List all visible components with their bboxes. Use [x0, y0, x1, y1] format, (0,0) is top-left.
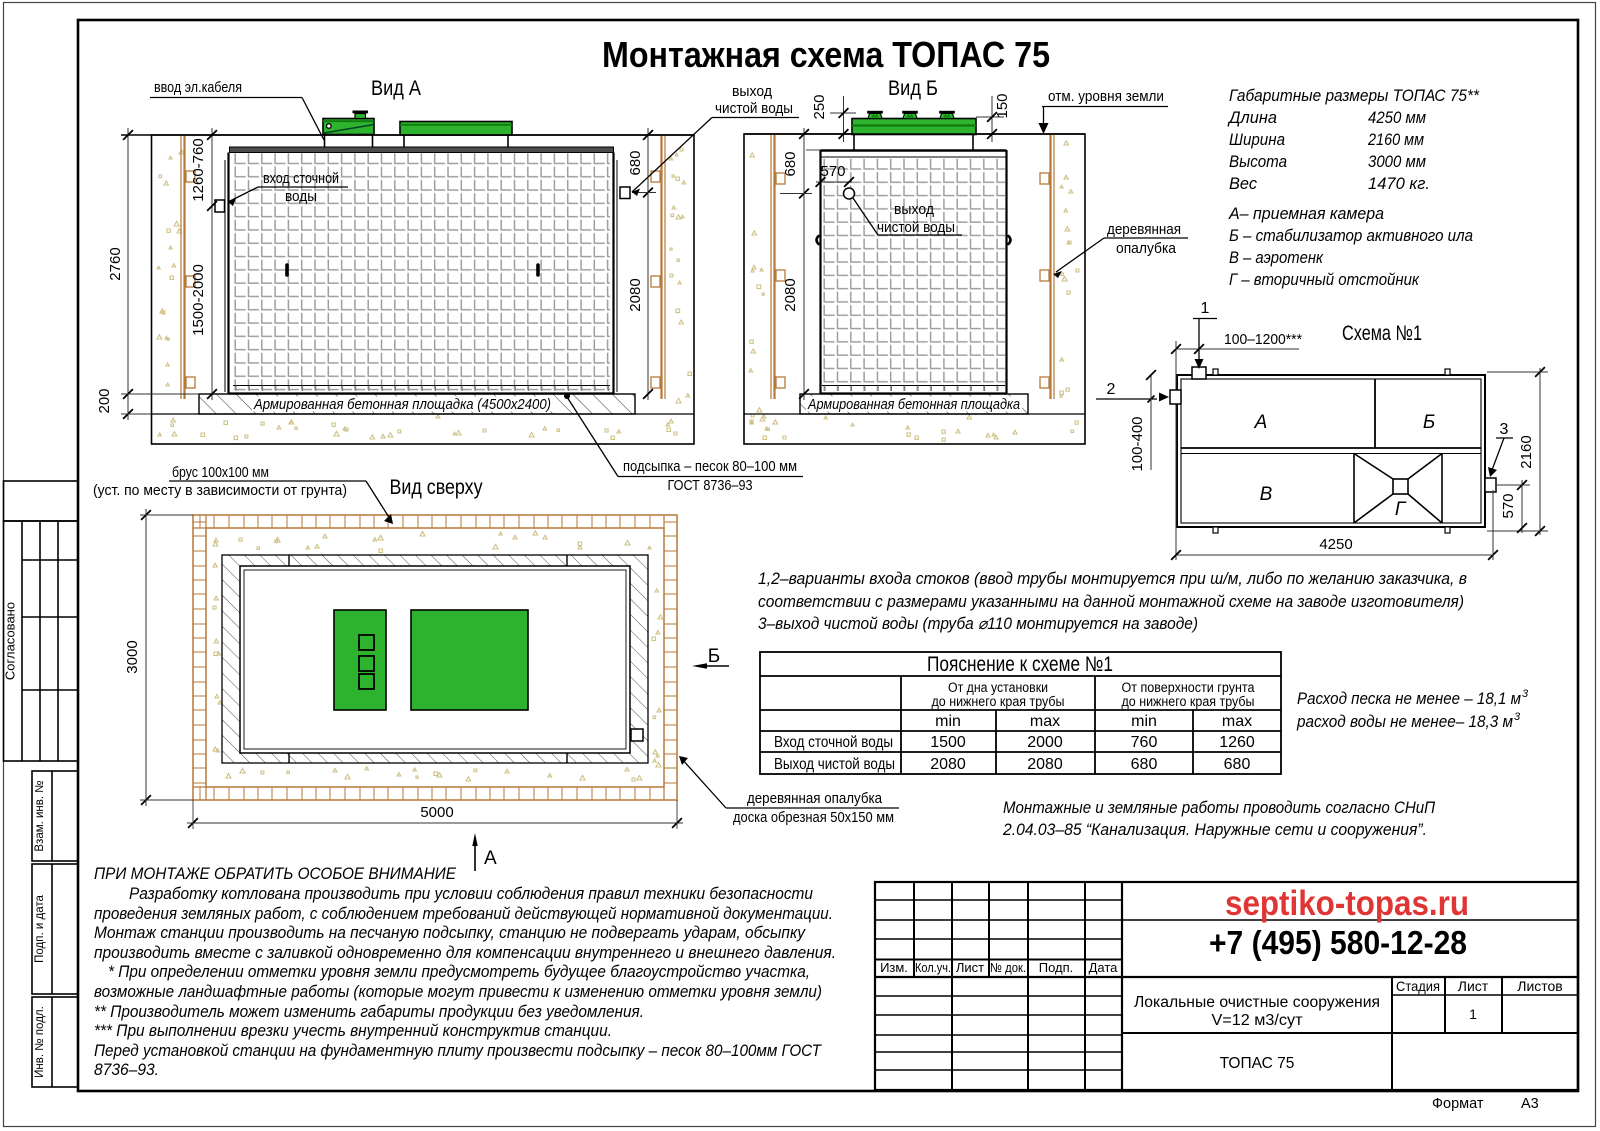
svg-text:Формат: Формат — [1432, 1096, 1484, 1112]
svg-text:Лист: Лист — [956, 960, 984, 975]
svg-text:Перед установкой станции на фу: Перед установкой станции на фундаментную… — [94, 1042, 823, 1060]
svg-text:8736–93.: 8736–93. — [94, 1061, 159, 1079]
svg-text:1260: 1260 — [1219, 734, 1255, 751]
svg-text:Взам. инв. №: Взам. инв. № — [34, 780, 46, 851]
svg-text:до нижнего края трубы: до нижнего края трубы — [932, 694, 1065, 709]
svg-text:Б – стабилизатор активного ила: Б – стабилизатор активного ила — [1229, 227, 1473, 245]
svg-text:опалубка: опалубка — [1116, 240, 1177, 257]
svg-text:А3: А3 — [1521, 1096, 1539, 1112]
svg-text:2760: 2760 — [107, 247, 124, 280]
svg-text:Инв. № подл.: Инв. № подл. — [34, 1006, 46, 1078]
svg-text:680: 680 — [627, 150, 644, 175]
svg-text:3–выход чистой воды (труба ⌀11: 3–выход чистой воды (труба ⌀110 монтируе… — [758, 615, 1198, 633]
svg-text:доска обрезная 50х150 мм: доска обрезная 50х150 мм — [733, 809, 894, 826]
svg-text:760: 760 — [1131, 734, 1158, 751]
svg-text:** Производитель может изменит: ** Производитель может изменить габариты… — [94, 1003, 644, 1021]
svg-text:680: 680 — [1224, 756, 1251, 773]
svg-text:*** При выполнении врезки учес: *** При выполнении врезки учесть внутрен… — [94, 1022, 612, 1040]
svg-text:Вид А: Вид А — [371, 77, 421, 100]
svg-text:№ док.: № док. — [990, 960, 1026, 975]
svg-text:Подп.: Подп. — [1039, 960, 1074, 975]
svg-text:(уст. по месту в зависимости о: (уст. по месту в зависимости от грунта) — [93, 482, 347, 499]
svg-text:расход воды не менее– 18,3 м: расход воды не менее– 18,3 м — [1296, 713, 1513, 731]
svg-text:2080: 2080 — [627, 278, 644, 311]
svg-text:2080: 2080 — [930, 756, 966, 773]
svg-text:1,2–варианты входа стоков (вв: 1,2–варианты входа стоков (ввод трубы мо… — [758, 570, 1467, 588]
svg-text:Ширина: Ширина — [1229, 131, 1285, 149]
svg-text:Схема №1: Схема №1 — [1342, 322, 1422, 345]
svg-text:2160 мм: 2160 мм — [1367, 131, 1424, 149]
svg-text:А– приемная камера: А– приемная камера — [1228, 205, 1384, 223]
svg-text:А: А — [1254, 412, 1268, 433]
svg-text:5000: 5000 — [420, 804, 453, 821]
svg-text:От поверхности грунта: От поверхности грунта — [1122, 680, 1255, 695]
svg-text:septiko-topas.ru: septiko-topas.ru — [1225, 884, 1469, 923]
svg-text:отм. уровня земли: отм. уровня земли — [1048, 88, 1164, 105]
svg-text:4250: 4250 — [1319, 536, 1352, 553]
svg-text:Габаритные размеры ТОПАС 75**: Габаритные размеры ТОПАС 75** — [1229, 87, 1480, 105]
svg-text:100–1200***: 100–1200*** — [1224, 331, 1302, 348]
svg-text:3: 3 — [1514, 711, 1521, 723]
svg-text:2080: 2080 — [782, 278, 799, 311]
svg-text:2160: 2160 — [1518, 435, 1535, 468]
svg-text:проведения земляных работ, с с: проведения земляных работ, с соблюдением… — [94, 905, 833, 923]
svg-text:Изм.: Изм. — [880, 960, 908, 975]
svg-text:+7 (495) 580-12-28: +7 (495) 580-12-28 — [1209, 924, 1467, 961]
svg-text:min: min — [935, 713, 961, 730]
svg-text:2080: 2080 — [1027, 756, 1063, 773]
svg-text:В: В — [1260, 484, 1273, 505]
svg-text:ПРИ МОНТАЖЕ ОБРАТИТЬ ОСОБОЕ ВН: ПРИ МОНТАЖЕ ОБРАТИТЬ ОСОБОЕ ВНИМАНИЕ — [94, 865, 457, 883]
svg-text:min: min — [1131, 713, 1157, 730]
svg-text:4250 мм: 4250 мм — [1368, 109, 1426, 127]
svg-text:* При определении отметки уров: * При определении отметки уровня земли п… — [108, 963, 810, 981]
svg-text:ТОПАС 75: ТОПАС 75 — [1220, 1055, 1295, 1072]
svg-text:Подп. и дата: Подп. и дата — [34, 895, 46, 963]
svg-text:250: 250 — [811, 94, 828, 119]
svg-text:100-400: 100-400 — [1129, 416, 1146, 471]
svg-text:Пояснение к схеме №1: Пояснение к схеме №1 — [927, 653, 1113, 676]
svg-text:1: 1 — [1201, 300, 1210, 317]
svg-text:2000: 2000 — [1027, 734, 1063, 751]
svg-text:Б: Б — [1423, 412, 1435, 433]
svg-text:Выход чистой воды: Выход чистой воды — [774, 756, 895, 773]
svg-text:В – аэротенк: В – аэротенк — [1229, 249, 1324, 267]
svg-text:570: 570 — [820, 163, 845, 180]
svg-text:3: 3 — [1522, 688, 1529, 700]
svg-text:Расход песка не менее – 18,1 м: Расход песка не менее – 18,1 м — [1297, 690, 1521, 708]
svg-text:Лист: Лист — [1458, 978, 1489, 994]
svg-text:Кол.уч.: Кол.уч. — [915, 960, 951, 975]
svg-text:3000: 3000 — [124, 640, 141, 673]
svg-text:200: 200 — [96, 388, 113, 413]
svg-text:подсыпка – песок 80–100 мм: подсыпка – песок 80–100 мм — [623, 458, 797, 475]
svg-text:соответствии с размерами указа: соответствии с размерами указанными на д… — [758, 593, 1464, 611]
svg-text:3: 3 — [1500, 421, 1509, 438]
svg-text:1470 кг.: 1470 кг. — [1368, 175, 1430, 193]
svg-text:Высота: Высота — [1229, 153, 1287, 171]
svg-text:Вид сверху: Вид сверху — [390, 476, 483, 499]
svg-text:деревянная: деревянная — [1107, 221, 1181, 238]
svg-text:2.04.03–85 “Канализация. Наруж: 2.04.03–85 “Канализация. Наружные сети и… — [1002, 821, 1427, 839]
svg-text:1260-760: 1260-760 — [190, 138, 207, 201]
svg-text:до нижнего края трубы: до нижнего края трубы — [1122, 694, 1255, 709]
svg-text:1500: 1500 — [930, 734, 966, 751]
svg-text:воды: воды — [285, 188, 317, 205]
svg-text:Монтаж станции производить на: Монтаж станции производить на песчаную п… — [94, 924, 807, 942]
svg-text:Б: Б — [708, 646, 720, 667]
svg-text:От дна установки: От дна установки — [948, 680, 1048, 695]
svg-text:1500-2000: 1500-2000 — [190, 264, 207, 336]
svg-text:Длина: Длина — [1227, 109, 1277, 127]
svg-text:вход сточной: вход сточной — [263, 170, 339, 187]
svg-text:Согласовано: Согласовано — [3, 602, 18, 680]
svg-text:возможные ландшафтные работы (: возможные ландшафтные работы (которые мо… — [94, 983, 822, 1001]
svg-text:max: max — [1222, 713, 1252, 730]
svg-text:Локальные очистные сооружения: Локальные очистные сооружения — [1134, 994, 1380, 1011]
svg-text:2: 2 — [1107, 381, 1116, 398]
svg-text:Г – вторичный отстойник: Г – вторичный отстойник — [1229, 271, 1420, 289]
svg-text:чистой воды: чистой воды — [715, 100, 793, 117]
svg-text:выход: выход — [732, 83, 772, 100]
svg-text:max: max — [1030, 713, 1060, 730]
svg-text:3000 мм: 3000 мм — [1368, 153, 1426, 171]
svg-text:Стадия: Стадия — [1396, 978, 1440, 994]
svg-text:570: 570 — [1500, 493, 1517, 518]
svg-text:Вход сточной воды: Вход сточной воды — [774, 734, 893, 751]
svg-text:Вид Б: Вид Б — [888, 77, 938, 100]
svg-text:Разработку котлована производи: Разработку котлована производить при усл… — [129, 885, 813, 903]
svg-text:Листов: Листов — [1517, 978, 1563, 994]
svg-text:V=12 м3/сут: V=12 м3/сут — [1212, 1012, 1303, 1029]
svg-text:1: 1 — [1469, 1006, 1477, 1022]
svg-text:Армированная бетонная площадка: Армированная бетонная площадка (4500х240… — [253, 396, 551, 413]
svg-text:Г: Г — [1395, 499, 1407, 520]
svg-text:А: А — [484, 848, 497, 869]
svg-text:производить вместе с заливкой: производить вместе с заливкой одновремен… — [94, 944, 836, 962]
svg-text:деревянная опалубка: деревянная опалубка — [747, 790, 883, 807]
svg-text:чистой воды: чистой воды — [877, 219, 955, 236]
svg-text:Монтажные и земляные работы пр: Монтажные и земляные работы проводить со… — [1003, 799, 1435, 817]
svg-text:Вес: Вес — [1229, 175, 1258, 193]
svg-text:150: 150 — [994, 93, 1011, 118]
svg-text:Монтажная схема ТОПАС 75: Монтажная схема ТОПАС 75 — [602, 34, 1050, 75]
svg-text:ввод эл.кабеля: ввод эл.кабеля — [154, 79, 242, 96]
svg-text:Дата: Дата — [1089, 960, 1119, 975]
svg-text:680: 680 — [1131, 756, 1158, 773]
svg-text:выход: выход — [894, 201, 934, 218]
svg-text:680: 680 — [782, 151, 799, 176]
svg-text:Армированная бетонная площадка: Армированная бетонная площадка — [807, 397, 1020, 413]
svg-text:брус 100х100 мм: брус 100х100 мм — [172, 464, 269, 481]
svg-text:ГОСТ 8736–93: ГОСТ 8736–93 — [668, 477, 753, 494]
